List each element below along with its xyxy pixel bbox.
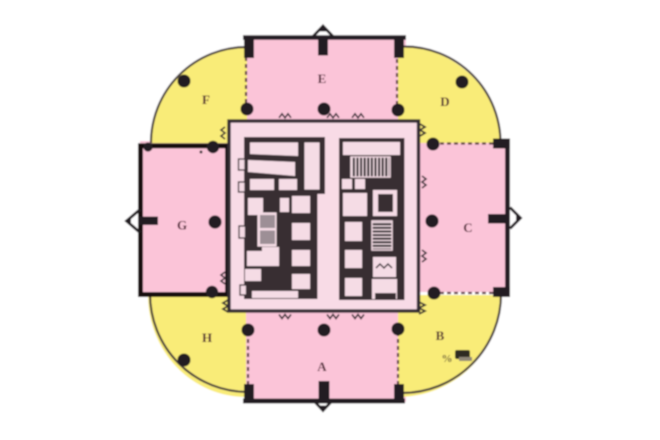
svg-text:G: G [177,218,187,233]
svg-text:F: F [202,92,210,107]
svg-text:C: C [463,220,472,235]
svg-text:B: B [436,328,445,343]
svg-text:D: D [440,94,449,109]
svg-text:H: H [202,330,212,345]
svg-text:%: % [442,353,453,365]
svg-text:E: E [318,71,327,86]
svg-text:A: A [317,359,327,374]
